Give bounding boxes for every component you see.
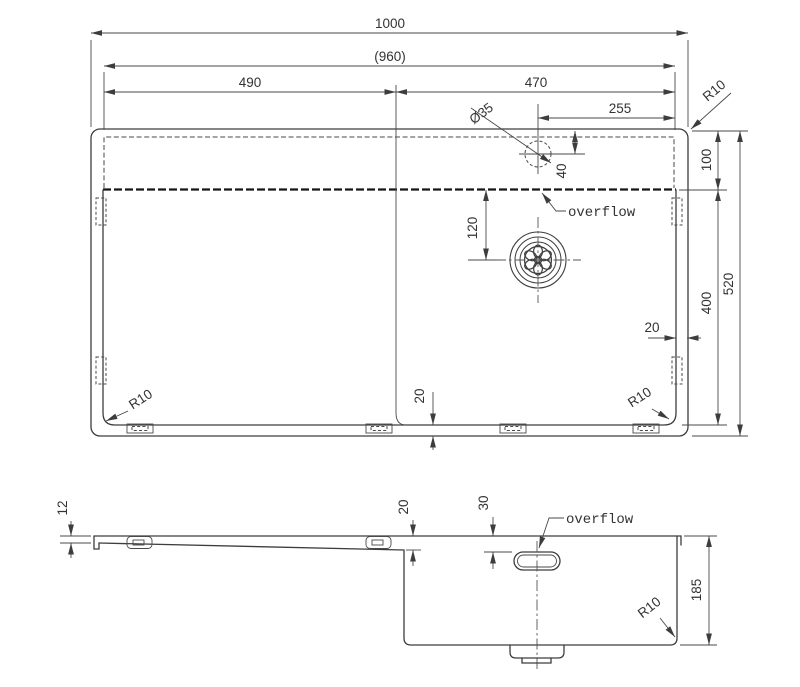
dim-400: 400 <box>682 190 727 425</box>
dim-r10-tr-label: R10 <box>700 77 729 104</box>
dim-120: 120 <box>465 190 497 260</box>
dim-185: 185 <box>680 536 717 645</box>
dim-r10-top-right: R10 <box>691 77 731 129</box>
dim-20-bottom-label: 20 <box>412 388 427 403</box>
dim-r10-bl-label: R10 <box>126 386 155 412</box>
dim-255-label: 255 <box>609 101 632 116</box>
dim-12: 12 <box>55 500 91 558</box>
side-clip-1 <box>127 537 152 549</box>
dim-520: 520 <box>692 131 748 436</box>
drain-strainer <box>495 217 581 303</box>
dim-185-label: 185 <box>689 579 704 602</box>
dim-520-label: 520 <box>721 273 736 296</box>
dim-30: 30 <box>476 495 512 569</box>
dim-470-label: 470 <box>525 75 548 90</box>
dim-100: 100 <box>679 131 748 190</box>
dim-r10-bottom-left: R10 <box>106 386 155 421</box>
dim-960-label: (960) <box>374 49 406 64</box>
dim-20-right: 20 <box>644 320 701 338</box>
dim-20-bottom: 20 <box>412 388 433 450</box>
dim-40: 40 <box>554 131 575 179</box>
dim-12-label: 12 <box>55 500 70 515</box>
deck-recess-dashed-outline <box>104 137 674 188</box>
technical-drawing-page: 1000 (960) 490 470 255 Ø35 R10 <box>0 0 800 687</box>
overflow-callout-side: overflow <box>539 512 634 548</box>
dim-470: 470 <box>396 75 675 92</box>
top-view: 1000 (960) 490 470 255 Ø35 R10 <box>91 16 748 450</box>
dim-400-label: 400 <box>699 292 714 315</box>
side-clip-2 <box>366 537 391 549</box>
clip-right-2 <box>672 357 682 384</box>
dim-490-label: 490 <box>239 75 262 90</box>
dim-30-label: 30 <box>476 495 491 510</box>
dim-r10-bottom-right: R10 <box>625 384 669 419</box>
clip-left-1 <box>96 198 106 225</box>
dim-dia35-label: Ø35 <box>467 100 496 127</box>
left-apron <box>94 536 99 549</box>
dim-40-label: 40 <box>554 163 569 178</box>
dim-r10-side-label: R10 <box>635 594 664 621</box>
overflow-callout-top: overflow <box>542 193 636 221</box>
dim-490: 490 <box>104 75 396 92</box>
mounting-clips <box>96 198 682 433</box>
dim-20-right-label: 20 <box>644 320 659 335</box>
dim-120-label: 120 <box>465 217 480 240</box>
dim-r10-br-label: R10 <box>625 384 654 410</box>
sink-technical-drawing: 1000 (960) 490 470 255 Ø35 R10 <box>0 0 800 687</box>
dim-1000: 1000 <box>91 16 688 127</box>
dim-1000-label: 1000 <box>375 16 405 31</box>
dim-100-label: 100 <box>699 149 714 172</box>
dim-255: 255 <box>538 101 675 118</box>
overflow-label-top: overflow <box>568 205 636 221</box>
bowl-divider-line <box>396 85 406 425</box>
inner-basin-outline <box>103 190 676 425</box>
overflow-label-side: overflow <box>566 512 634 528</box>
dim-20-side: 20 <box>396 499 421 566</box>
clip-right-1 <box>672 198 682 225</box>
dim-r10-side: R10 <box>635 594 675 637</box>
dim-20-side-label: 20 <box>396 499 411 514</box>
outer-rim-outline <box>91 129 688 436</box>
side-view: 12 20 30 overflow 185 R10 <box>55 495 717 672</box>
clip-left-2 <box>96 357 106 384</box>
